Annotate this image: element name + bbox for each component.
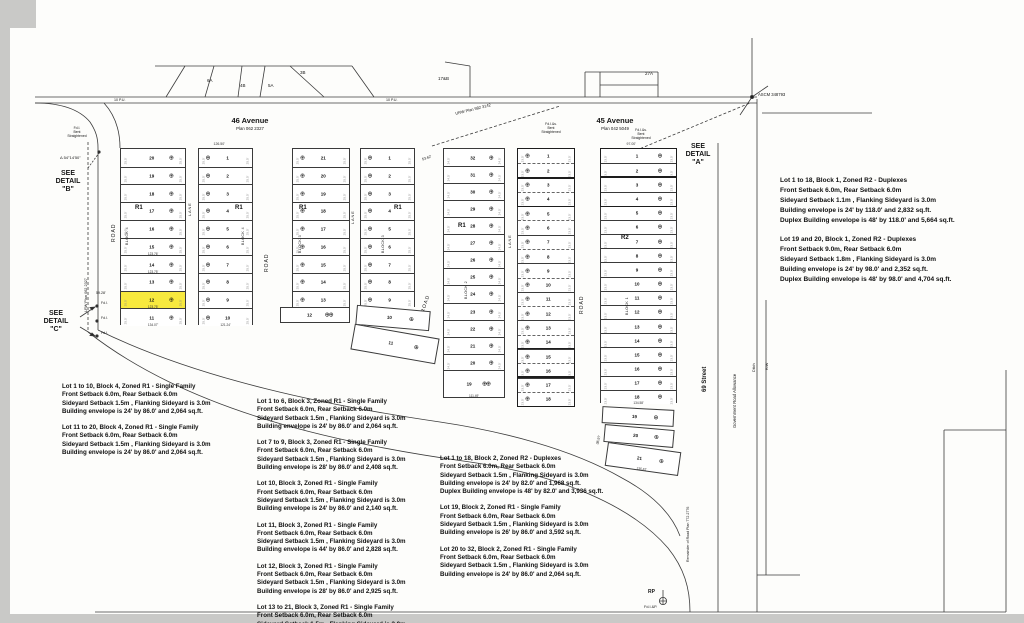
edge-dimension: 25.5' [123, 282, 127, 289]
lot-number: 8 [636, 253, 639, 258]
lot-number: 8 [547, 254, 550, 259]
lot-number: 19 [632, 413, 637, 418]
lot-number: 2 [547, 168, 550, 173]
edge-dimension: 23.5' [603, 355, 607, 362]
lot-row: 19⊕25.5'25.5' [121, 167, 185, 185]
edge-dimension: 25.5' [123, 300, 127, 307]
edge-dimension: 23.5' [520, 213, 524, 220]
lot-number: 14 [546, 339, 551, 344]
lot-row: 4⊕25.5'25.5' [361, 202, 414, 220]
note-line: Lot 19 and 20, Block 1, Zoned R2 - Duple… [780, 235, 1018, 245]
edge-dimension: 23.5' [603, 326, 607, 333]
note-line: Duplex Building envelope is 48' by 118.0… [780, 216, 1018, 226]
lot-row: 18⊕134.58'23.5'23.5' [601, 390, 676, 404]
lot-row: 10⊕23.5'23.5' [601, 277, 676, 291]
edge-dimension: 25.5' [246, 194, 250, 201]
note-line: Front Setback 6.0m, Rear Setback 6.0m [257, 612, 453, 620]
note-line: Lot 10, Block 3, Zoned R1 - Single Famil… [257, 480, 453, 488]
lot-row: 19⊕25.5'25.5' [293, 184, 349, 202]
lot-row: 3⊕25.5'25.5' [199, 184, 252, 202]
edge-dimension: 24.5' [498, 346, 502, 353]
edge-dimension: 23.5' [568, 171, 572, 178]
survey-marker-icon: ⊕ [300, 279, 304, 286]
edge-dimension: 25.5' [246, 247, 250, 254]
edge-dimension: 25.5' [343, 194, 347, 201]
block-label: BLOCK 2 [464, 281, 468, 299]
edge-dimension: 24.5' [498, 175, 502, 182]
lot-row: 1⊕23.5'23.5' [518, 149, 574, 163]
lot-dimension: 111.49' [469, 394, 479, 398]
note-line: Building envelope is 24' by 86.0' and 2,… [62, 408, 274, 416]
block-strip-4: 1⊕25.5'25.5'2⊕25.5'25.5'3⊕25.5'25.5'4⊕25… [360, 148, 415, 307]
lot-row: 10⊕121.24'25.5'25.5' [199, 308, 252, 326]
edge-dimension: 25.5' [343, 176, 347, 183]
edge-dimension: 25.5' [246, 158, 250, 165]
edge-dimension: 23.5' [670, 298, 674, 305]
lot-row: 15⊕25.5'25.5' [293, 255, 349, 273]
lot-row: 9⊕23.5'23.5' [601, 262, 676, 276]
block2-notes: Lot 1 to 18, Block 2, Zoned R2 - Duplexe… [440, 455, 648, 587]
parcel-4b-label: 4B [240, 83, 246, 88]
edge-dimension: 23.5' [568, 271, 572, 278]
delta-angle-label: Δ 54°14'50" [60, 156, 81, 161]
edge-dimension: 23.5' [520, 156, 524, 163]
lot-number: 16 [321, 244, 326, 249]
note-line: Front Setback 6.0m, Rear Setback 6.0m [62, 432, 274, 440]
survey-marker-icon: ⊕ [654, 434, 659, 441]
edge-dimension: 23.5' [670, 341, 674, 348]
edge-dimension: 25.5' [343, 229, 347, 236]
note-line: Sideyard Setback 1.5m , Flanking Sideyar… [257, 497, 453, 505]
edge-dimension: 25.5' [246, 265, 250, 272]
survey-marker-icon: ⊕ [657, 380, 661, 387]
lot-number: 4 [226, 209, 229, 214]
block-strip-1: 20⊕25.5'25.5'19⊕25.5'25.5'18⊕25.5'25.5'1… [120, 148, 186, 325]
block4-notes: Lot 1 to 10, Block 4, Zoned R1 - Single … [62, 383, 274, 465]
lot-number: 2 [636, 168, 639, 173]
lot-number: 17 [546, 382, 551, 387]
edge-dimension: 25.5' [343, 158, 347, 165]
lot-row: 7⊕23.5'23.5' [518, 235, 574, 249]
edge-dimension: 23.5' [520, 285, 524, 292]
survey-marker-icon: ⊕ [367, 226, 371, 233]
survey-marker-icon: ⊕ [525, 152, 529, 159]
note-line: Building envelope is 28' by 86.0' and 2,… [257, 588, 453, 596]
lot-row: 14⊕23.5'23.5' [601, 333, 676, 347]
see-detail-c: SEEDETAIL"C" [31, 310, 81, 334]
survey-marker-icon: ⊕ [205, 226, 209, 233]
zoning-label: R1 [235, 205, 243, 211]
lot-number: 13 [321, 297, 326, 302]
edge-dimension: 23.5' [520, 256, 524, 263]
lot-row: 25⊕24.5'24.5' [444, 268, 504, 285]
setback-note-paragraph: Lot 19, Block 2, Zoned R1 - Single Famil… [440, 504, 648, 537]
edge-dimension: 25.5' [179, 211, 183, 218]
edge-dimension: 24.5' [446, 209, 450, 216]
lot-row: 8⊕25.5'25.5' [199, 273, 252, 291]
survey-marker-icon: ⊕ [657, 224, 661, 231]
lot-number: 17 [634, 381, 639, 386]
edge-dimension: 24.5' [446, 363, 450, 370]
edge-dimension: 25.5' [408, 282, 412, 289]
survey-marker-icon: ⊕ [367, 190, 371, 197]
survey-marker-icon: ⊕ [653, 414, 657, 421]
edge-dimension: 23.5' [568, 313, 572, 320]
found-iron-left: Fd.I.BentStraightened [60, 127, 94, 139]
edge-dimension: 23.5' [670, 241, 674, 248]
lot-dimension: 134.07' [148, 323, 158, 327]
lot-row: 31⊕24.5'24.5' [444, 166, 504, 183]
lot-row: 20⊕24.5'24.5' [444, 354, 504, 371]
lot-row: 12⊕23.5'23.5' [601, 305, 676, 319]
note-line: Front Setback 6.0m, Rear Setback 6.0m [257, 571, 453, 579]
note-line: Front Setback 6.0m, Rear Setback 6.0m [257, 406, 453, 414]
block-label: BLOCK 3 [381, 235, 385, 253]
lot-row: 10⊕23.5'23.5' [518, 278, 574, 292]
zoning-label: R2 [621, 235, 629, 241]
lot-number: 6 [226, 244, 229, 249]
lot-dimension: 134.58' [633, 401, 643, 405]
lot-row: 16⊕23.5'23.5' [518, 363, 574, 377]
plat-map-scan: 46 Avenue Plan 062 2327 45 Avenue Plan 0… [0, 0, 1024, 623]
note-line: Building envelope is 24' by 86.0' and 2,… [440, 571, 648, 579]
lot-number: 11 [149, 315, 154, 320]
survey-marker-icon: ⊕ [300, 154, 304, 161]
survey-marker-icon: ⊕ [169, 314, 173, 321]
lot-row: 5⊕23.5'23.5' [518, 206, 574, 220]
edge-dimension: 24.5' [446, 158, 450, 165]
edge-dimension: 24.5' [498, 226, 502, 233]
setback-note-paragraph: Lot 11 to 20, Block 4, Zoned R1 - Single… [62, 424, 274, 457]
block-strip-7: 1⊕23.5'23.5'2⊕23.5'23.5'3⊕23.5'23.5'4⊕23… [600, 148, 677, 403]
lot-row: 1⊕23.5'23.5' [601, 149, 676, 163]
edge-dimension: 25.5' [408, 229, 412, 236]
note-line: Building envelope is 28' by 86.0' and 2,… [257, 464, 453, 472]
survey-marker-icon: ⊕ [525, 353, 529, 360]
survey-marker-icon: ⊕ [489, 154, 493, 161]
lane-label-2: LANE [351, 210, 356, 224]
edge-dimension: 25.5' [123, 158, 127, 165]
lot-number: 19 [321, 191, 326, 196]
edge-dimension: 25.5' [201, 194, 205, 201]
survey-marker-icon: ⊕ [657, 266, 661, 273]
dim-59-28: 59.28' [96, 291, 106, 295]
lot-row: 12⊕23.5'23.5' [518, 306, 574, 320]
pu-label-2: 10 P.U. [386, 98, 398, 102]
edge-dimension: 23.5' [568, 256, 572, 263]
lot-row: 6⊕23.5'23.5' [601, 220, 676, 234]
survey-marker-icon: ⊕ [367, 172, 371, 179]
edge-dimension: 23.5' [520, 299, 524, 306]
lot-row: 7⊕25.5'25.5' [199, 255, 252, 273]
highlighted-lot: 12⊕123.75'25.5'25.5' [121, 291, 185, 309]
block-label: BLOCK 3 [298, 235, 302, 253]
survey-marker-icon: ⊕ [205, 243, 209, 250]
lot-row: 24⊕24.5'24.5' [444, 285, 504, 302]
edge-dimension: 25.5' [295, 265, 299, 272]
survey-marker-icon: ⊕ [525, 367, 529, 374]
edge-dimension: 24.5' [446, 260, 450, 267]
edge-dimension: 23.5' [568, 299, 572, 306]
edge-dimension: 23.5' [670, 369, 674, 376]
edge-dimension: 24.5' [498, 328, 502, 335]
note-line: Sideyard Setback 1.5m , Flanking Sideyar… [257, 579, 453, 587]
avenue-45-label: 45 Avenue [565, 117, 665, 126]
lot-number: 25 [470, 275, 475, 280]
edge-dimension: 25.5' [363, 194, 367, 201]
survey-marker-icon: ⊕ [525, 310, 529, 317]
lot-number: 21 [470, 343, 475, 348]
note-line: Building envelope is 26' by 86.0' and 3,… [440, 529, 648, 537]
block-strip-6: 1⊕23.5'23.5'2⊕23.5'23.5'3⊕23.5'23.5'4⊕23… [517, 148, 575, 405]
block-label: BLOCK 1 [625, 297, 629, 315]
edge-dimension: 24.5' [446, 175, 450, 182]
survey-marker-icon: ⊕ [205, 314, 209, 321]
zoning-label: R1 [394, 205, 402, 211]
survey-marker-icon: ⊕ [169, 154, 173, 161]
note-line: Building envelope is 24' by 82.0' and 1,… [440, 480, 648, 488]
edge-dimension: 23.5' [670, 397, 674, 404]
lot-row: 18⊕23.5'23.5' [518, 392, 574, 406]
survey-marker-icon: ⊕ [205, 190, 209, 197]
survey-marker-icon: ⊕ [658, 458, 663, 465]
lot-number: 5 [636, 211, 639, 216]
lot-row: 20⊕25.5'25.5' [293, 167, 349, 185]
lot-number: 5 [388, 226, 391, 231]
edge-dimension: 23.5' [603, 213, 607, 220]
edge-dimension: 23.5' [603, 383, 607, 390]
lot-number: 7 [388, 262, 391, 267]
edge-dimension: 25.5' [408, 194, 412, 201]
lot-number: 3 [226, 191, 229, 196]
lot-row: 1⊕25.5'25.5' [199, 149, 252, 167]
edge-dimension: 25.5' [343, 282, 347, 289]
survey-marker-icon: ⊕ [525, 167, 529, 174]
lot-number: 20 [470, 360, 475, 365]
note-line: Building envelope is 24' by 118.0' and 2… [780, 206, 1018, 216]
survey-marker-icon: ⊕ [205, 172, 209, 179]
edge-dimension: 25.5' [201, 229, 205, 236]
lot-number: 14 [634, 338, 639, 343]
survey-marker-icon: ⊕ [489, 206, 493, 213]
edge-dimension: 24.5' [498, 363, 502, 370]
street-69-label: 69 Street [702, 367, 709, 392]
edge-dimension: 23.5' [520, 385, 524, 392]
survey-marker-icon: ⊕ [205, 261, 209, 268]
survey-marker-icon: ⊕ [489, 359, 493, 366]
lot-row: 30⊕24.5'24.5' [444, 183, 504, 200]
lot-number: 4 [388, 209, 391, 214]
lot-number: 19 [149, 173, 154, 178]
edge-dimension: 25.5' [408, 158, 412, 165]
lot-row: 28⊕24.5'24.5' [444, 217, 504, 234]
edge-dimension: 25.5' [246, 300, 250, 307]
lot-number: 4 [636, 196, 639, 201]
edge-dimension: 25.5' [179, 247, 183, 254]
edge-dimension: 25.5' [408, 211, 412, 218]
note-line: Lot 11, Block 3, Zoned R1 - Single Famil… [257, 522, 453, 530]
survey-marker-icon: ⊕ [657, 195, 661, 202]
note-line: Sideyard Setback 1.5m , Flanking Sideyar… [62, 400, 274, 408]
setback-note-paragraph: Lot 20 to 32, Block 2, Zoned R1 - Single… [440, 546, 648, 579]
lot-row: 13⊕23.5'23.5' [518, 320, 574, 334]
edge-dimension: 23.5' [568, 285, 572, 292]
survey-marker-icon: ⊕ [205, 296, 209, 303]
lot-number: 10 [225, 315, 230, 320]
lot-row: 22⊕24.5'24.5' [444, 320, 504, 337]
lot-row: 3⊕23.5'23.5' [518, 178, 574, 192]
lot-number: 6 [388, 244, 391, 249]
survey-marker-icon: ⊕ [657, 280, 661, 287]
survey-marker-icon: ⊕⊕ [325, 311, 333, 318]
edge-dimension: 23.5' [670, 213, 674, 220]
lot-row: 9⊕25.5'25.5' [199, 291, 252, 309]
edge-dimension: 25.5' [363, 265, 367, 272]
edge-dimension: 24.5' [446, 243, 450, 250]
lot-row: 7⊕23.5'23.5' [601, 234, 676, 248]
parcel-3b-label: 3B [300, 70, 306, 75]
survey-marker-icon: ⊕ [525, 381, 529, 388]
lot-number: 12 [634, 310, 639, 315]
edge-dimension: 23.5' [603, 199, 607, 206]
lot-row: 21⊕24.5'24.5' [444, 337, 504, 354]
setback-note-paragraph: Lot 11, Block 3, Zoned R1 - Single Famil… [257, 522, 453, 555]
setback-note-paragraph: Lot 12, Block 3, Zoned R1 - Single Famil… [257, 563, 453, 596]
edge-dimension: 23.5' [670, 227, 674, 234]
note-line: Lot 13 to 21, Block 3, Zoned R1 - Single… [257, 604, 453, 612]
survey-marker-icon: ⊕ [525, 267, 529, 274]
edge-dimension: 23.5' [670, 383, 674, 390]
edge-dimension: 23.5' [670, 270, 674, 277]
lot-number: 12 [149, 297, 154, 302]
lot-number: 15 [321, 262, 326, 267]
edge-dimension: 23.5' [568, 199, 572, 206]
lot-row: 5⊕23.5'23.5' [601, 206, 676, 220]
edge-dimension: 23.5' [603, 241, 607, 248]
survey-marker-icon: ⊕ [657, 152, 661, 159]
note-line: Lot 7 to 9, Block 3, Zoned R1 - Single F… [257, 439, 453, 447]
lot-row: 8⊕23.5'23.5' [518, 249, 574, 263]
survey-marker-icon: ⊕ [169, 243, 173, 250]
edge-dimension: 23.5' [568, 156, 572, 163]
lot-number: 13 [634, 324, 639, 329]
edge-dimension: 25.5' [201, 247, 205, 254]
survey-marker-icon: ⊕ [367, 243, 371, 250]
lot-number: 11 [546, 297, 551, 302]
edge-dimension: 25.5' [363, 158, 367, 165]
edge-dimension: 25.5' [295, 194, 299, 201]
lot-number: 1 [226, 155, 229, 160]
lot-number: 16 [634, 366, 639, 371]
edge-dimension: 24.5' [446, 346, 450, 353]
parcel-5a-label: 5A [268, 83, 274, 88]
lot-number: 27 [470, 241, 475, 246]
note-line: Lot 1 to 18, Block 1, Zoned R2 - Duplexe… [780, 176, 1018, 186]
survey-marker-icon: ⊕ [657, 167, 661, 174]
lot-row: 4⊕23.5'23.5' [518, 192, 574, 206]
edge-dimension: 23.5' [520, 199, 524, 206]
lot-row: 17⊕23.5'23.5' [601, 376, 676, 390]
lot-row: 23⊕24.5'24.5' [444, 303, 504, 320]
fdi-label-2: Fd.I. [101, 317, 108, 321]
edge-dimension: 23.5' [603, 171, 607, 178]
edge-dimension: 25.5' [179, 282, 183, 289]
setback-note-paragraph: Lot 1 to 6, Block 3, Zoned R1 - Single F… [257, 398, 453, 431]
lot-number: 6 [547, 225, 550, 230]
edge-dimension: 23.5' [603, 284, 607, 291]
note-line: Front Setback 9.0m, Rear Setback 6.0m [780, 245, 1018, 255]
lot-row: 15⊕23.5'23.5' [601, 347, 676, 361]
survey-marker-icon: ⊕ [525, 396, 529, 403]
note-line: Sideyard Setback 1.5m , Flanking Sideyar… [440, 472, 648, 480]
scan-edge-shade [0, 0, 36, 28]
edge-dimension: 25.5' [201, 318, 205, 325]
survey-marker-icon: ⊕ [525, 182, 529, 189]
lrw-plan-label: LRW Plan 062 2327 [84, 278, 88, 312]
block-strip-3: 21⊕25.5'25.5'20⊕25.5'25.5'19⊕25.5'25.5'1… [292, 148, 350, 307]
parcel-6a-label: 6A [207, 78, 213, 83]
edge-dimension: 23.5' [603, 312, 607, 319]
edge-dimension: 23.5' [568, 385, 572, 392]
note-line: Duplex Building envelope is 48' by 82.0'… [440, 488, 648, 496]
lot-number: 8 [388, 279, 391, 284]
note-line: Sideyard Setback 1.5m , Flanking Sideyar… [257, 538, 453, 546]
lot-dimension: 121.24' [220, 323, 230, 327]
edge-dimension: 23.5' [670, 156, 674, 163]
lot-number: 14 [321, 279, 326, 284]
edge-dimension: 25.5' [201, 265, 205, 272]
lot-number: 26 [470, 258, 475, 263]
lot-row: 8⊕23.5'23.5' [601, 248, 676, 262]
lot-row: 9⊕23.5'23.5' [518, 263, 574, 277]
lot-row: 11⊕23.5'23.5' [601, 291, 676, 305]
setback-note-paragraph: Lot 13 to 21, Block 3, Zoned R1 - Single… [257, 604, 453, 623]
survey-marker-icon: ⊕ [489, 188, 493, 195]
note-line: Lot 1 to 6, Block 3, Zoned R1 - Single F… [257, 398, 453, 406]
lot-row: 15⊕23.5'23.5' [518, 349, 574, 363]
lot-number: 1 [636, 153, 639, 158]
lot-row: 13⊕25.5'25.5' [293, 291, 349, 309]
see-detail-a: SEEDETAIL"A" [673, 143, 723, 167]
survey-marker-icon: ⊕ [489, 342, 493, 349]
lot-number: 21 [321, 155, 326, 160]
edge-dimension: 25.5' [123, 247, 127, 254]
lot-number: 32 [470, 155, 475, 160]
survey-marker-icon: ⊕ [525, 239, 529, 246]
lot-number: 15 [546, 354, 551, 359]
setback-note-paragraph: Lot 1 to 18, Block 2, Zoned R2 - Duplexe… [440, 455, 648, 496]
block1-notes: Lot 1 to 18, Block 1, Zoned R2 - Duplexe… [780, 176, 1018, 295]
pu-label-1: 10 P.U. [114, 98, 126, 102]
lot-number: 12 [307, 312, 312, 317]
survey-marker-icon: ⊕ [205, 208, 209, 215]
lot-number: 20 [633, 433, 638, 438]
edge-dimension: 25.5' [201, 176, 205, 183]
lot-number: 7 [226, 262, 229, 267]
edge-dimension: 23.5' [568, 328, 572, 335]
edge-dimension: 23.5' [520, 185, 524, 192]
survey-marker-icon: ⊕ [657, 252, 661, 259]
lot-row: 32⊕24.5'24.5' [444, 149, 504, 166]
edge-dimension: 25.5' [408, 265, 412, 272]
edge-dimension: 25.5' [201, 300, 205, 307]
lot-row: 17⊕25.5'25.5' [121, 202, 185, 220]
edge-dimension: 25.5' [123, 211, 127, 218]
lot-number: 2 [226, 173, 229, 178]
survey-marker-icon: ⊕ [205, 154, 209, 161]
note-line: Building envelope is 24' by 86.0' and 2,… [257, 505, 453, 513]
edge-dimension: 23.5' [603, 256, 607, 263]
